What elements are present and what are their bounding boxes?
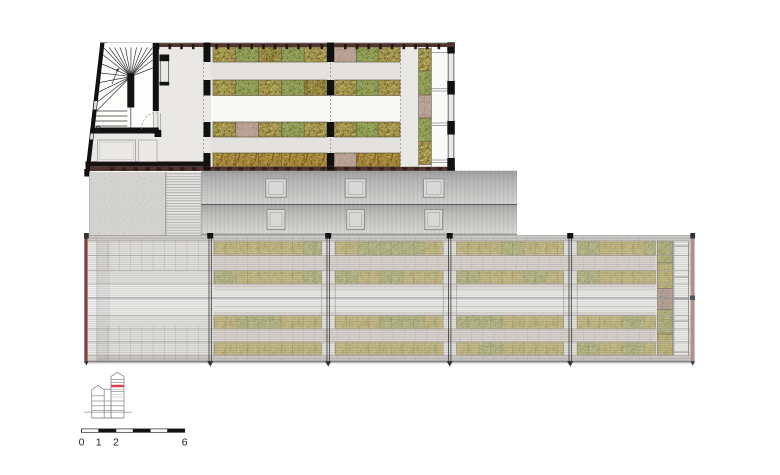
svg-text:0: 0 — [79, 437, 85, 449]
svg-text:1: 1 — [96, 437, 102, 449]
svg-text:6: 6 — [182, 437, 188, 449]
svg-text:2: 2 — [113, 437, 119, 449]
